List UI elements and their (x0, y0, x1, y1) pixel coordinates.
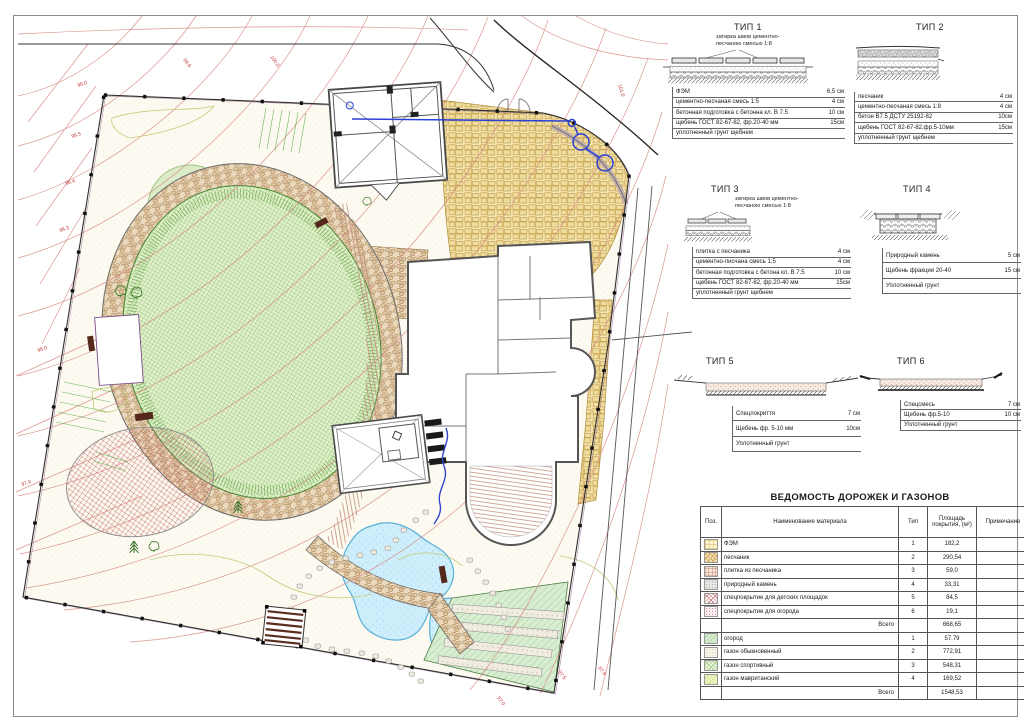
swatch-playground (704, 593, 718, 604)
col-header-name: Наименование материала (722, 507, 899, 538)
total-row: Всего1548,53 (701, 686, 1024, 700)
section-title: ТИП 6 (856, 356, 966, 366)
materials-table-body: ФЭМ1182,2песчаник2290,54плитка из песчан… (701, 538, 1024, 700)
materials-table: Поз. Наименование материала Тип Площадь … (700, 506, 1024, 700)
layer-thickness (1016, 283, 1020, 290)
layer-row: щебень ГОСТ 82-67-82, фр.20-40 мм15см (693, 279, 851, 289)
layer-name: Спецпокриття (736, 411, 775, 418)
layer-thickness (840, 130, 844, 137)
layer-row: бетонная подготовка с бетонна кл. В 7.51… (673, 108, 845, 118)
section-title: ТИП 3 (640, 184, 810, 194)
section-tip3: ТИП 3 затирка швов цементно- песчаною см… (640, 184, 810, 299)
layer-row: Уплотненный грунт (733, 437, 861, 452)
layer-list: Природный камень5 смЩебень фракции 20-40… (882, 248, 1021, 294)
swatch-sandstone (704, 552, 718, 563)
layer-name: песчаник (858, 94, 883, 101)
layer-list: ФЭМ6,5 смцементно-песчаная смесь 1:54 см… (672, 87, 845, 139)
contour-label: 98.0 (37, 345, 48, 354)
section-tip1: ТИП 1 затирка швов цементно- песчаною см… (648, 22, 848, 139)
swatch-tile (704, 566, 718, 577)
joint-callout: затирка швов цементно- песчаною смесью 1… (716, 34, 848, 47)
layer-thickness: 4 см (834, 259, 850, 266)
layer-row: цементно-песчаная смесь 1:54 см (673, 98, 845, 108)
contour-label: 100.0 (268, 55, 280, 69)
swatch-fem (704, 539, 718, 550)
layer-name: уплотненный грунт щебнем (696, 290, 773, 297)
layer-row: Щебень фракции 20-4015 см (883, 263, 1021, 278)
layer-row: щебень ГОСТ 82-67-82, фр.20-40 мм15см (673, 119, 845, 129)
layer-name: Щебень фр. 5-10 мм (736, 426, 793, 433)
col-header-note: Примечание (977, 507, 1024, 538)
layer-thickness: 15см (826, 120, 844, 127)
col-header-type: Тип (899, 507, 928, 538)
layer-row: бетонная подготовка с бетона кл. В 7.510… (693, 268, 851, 278)
layer-name: Природный камень (886, 253, 940, 260)
layer-row: Уплотненный грунт (883, 279, 1021, 294)
layer-thickness: 7 см (1004, 402, 1020, 409)
swatch-ogorod (704, 633, 718, 644)
table-row: природный камень433,31 (701, 578, 1024, 592)
tip5-cross-section (672, 372, 860, 402)
contour-label: 97.5 (596, 666, 607, 678)
tip1-cross-section (658, 49, 818, 85)
layer-name: бетон В7.5 ДСТУ 25192-82 (858, 114, 932, 121)
layer-name: бетонная подготовка с бетонна кл. В 7.5 (676, 110, 788, 117)
layer-name: цементно-песчаная смесь 1:8 (858, 104, 941, 111)
layer-row: цементно-песчаная смесь 1:84 см (855, 102, 1013, 112)
table-title: ВЕДОМОСТЬ ДОРОЖЕК И ГАЗОНОВ (700, 492, 1020, 503)
layer-row: уплотненный грунт щебнем (855, 134, 1013, 144)
layer-list: песчаник4 смцементно-песчаная смесь 1:84… (854, 92, 1013, 144)
layer-row: ФЭМ6,5 см (673, 87, 845, 97)
layer-thickness: 5 см (1004, 253, 1020, 260)
layer-row: щебень ГОСТ 82-67-82,фр.5-10мм15см (855, 123, 1013, 133)
col-header-area: Площадь покрытия, (м²) (928, 507, 977, 538)
total-row: Всего668,65 (701, 619, 1024, 633)
swatch-natstone (704, 579, 718, 590)
layer-row: Щебень фр.5-1010 см (901, 410, 1021, 420)
tip4-cross-section (858, 208, 962, 244)
layer-row: Уплотненный грунт (901, 421, 1021, 431)
layer-list: Спецсмесь7 смЩебень фр.5-1010 смУплотнен… (900, 400, 1021, 431)
layer-name: цементно-писчана смесь 1:5 (696, 259, 776, 266)
table-row: плитка из песчаника359,0 (701, 565, 1024, 579)
table-row: огород157,79 (701, 632, 1024, 646)
layer-thickness (856, 441, 860, 448)
section-title: ТИП 2 (846, 22, 1014, 32)
swatch-lawnmavr (704, 674, 718, 685)
swatch-gardencover (704, 606, 718, 617)
contour-label: 99.6 (181, 58, 192, 70)
swatch-lawnplain (704, 647, 718, 658)
layer-name: щебень ГОСТ 82-67-82, фр.20-40 мм (676, 120, 779, 127)
section-tip4: ТИП 4 Природный камень5 смЩебень фракции… (852, 184, 982, 294)
layer-name: плитка с песчаника (696, 249, 750, 256)
section-tip2: ТИП 2 песчаник4 смцементно-песчаная смес… (846, 22, 1014, 144)
layer-thickness: 15см (994, 125, 1012, 132)
layer-thickness: 4 см (828, 99, 844, 106)
contour-label: 98.4 (65, 178, 76, 187)
section-tip6: ТИП 6 Спецсмесь7 смЩебень фр.5-1010 смУп… (856, 356, 966, 431)
contour-label: 97.9 (21, 479, 32, 488)
layer-name: Уплотненный грунт (736, 441, 789, 448)
layer-row: Спецсмесь7 см (901, 400, 1021, 410)
table-row: песчаник2290,54 (701, 551, 1024, 565)
layer-thickness: 10 см (1001, 412, 1020, 419)
contour-label: 101.0 (616, 84, 626, 98)
tip2-cross-section (852, 44, 944, 90)
drawing-sheet: 99.6 100.0 101.0 98.0 98.5 98.4 98.3 98.… (0, 0, 1024, 724)
joint-callout: затирка швов цементно- песчаною смесью 1… (735, 196, 810, 209)
section-title: ТИП 4 (852, 184, 982, 194)
tip3-cross-section (678, 211, 758, 245)
layer-row: уплотненный грунт щебнем (673, 129, 845, 139)
site-plan: 99.6 100.0 101.0 98.0 98.5 98.4 98.3 98.… (0, 0, 692, 724)
layer-thickness: 10см (994, 114, 1012, 121)
layer-row: плитка с песчаника4 см (693, 247, 851, 257)
layer-thickness: 10 см (831, 270, 850, 277)
layer-name: Уплотненный грунт (904, 422, 957, 429)
layer-thickness: 4 см (996, 104, 1012, 111)
layer-thickness (1016, 422, 1020, 429)
layer-row: Щебень фр. 5-10 мм10см (733, 421, 861, 436)
layer-name: ФЭМ (676, 89, 690, 96)
layer-thickness: 4 см (996, 94, 1012, 101)
layer-name: цементно-песчаная смесь 1:5 (676, 99, 759, 106)
wooden-deck (261, 605, 306, 649)
layer-list: плитка с песчаника4 смцементно-писчана с… (692, 247, 851, 299)
contour-label: 98.5 (71, 131, 82, 140)
layer-name: щебень ГОСТ 82-67-82,фр.5-10мм (858, 125, 954, 132)
layer-thickness: 15 см (1001, 268, 1020, 275)
layer-row: бетон В7.5 ДСТУ 25192-8210см (855, 113, 1013, 123)
layer-row: песчаник4 см (855, 92, 1013, 102)
swatch-lawnsport (704, 660, 718, 671)
table-row: газон спортивный3548,31 (701, 659, 1024, 673)
layer-name: щебень ГОСТ 82-67-82, фр.20-40 мм (696, 280, 799, 287)
layer-name: Уплотненный грунт (886, 283, 939, 290)
layer-name: уплотненный грунт щебнем (676, 130, 753, 137)
tip6-cross-section (858, 370, 1004, 398)
contour-label: 97.0 (495, 696, 506, 708)
section-title: ТИП 5 (650, 356, 790, 366)
layer-list: Спецпокриття7 смЩебень фр. 5-10 мм10смУп… (732, 406, 861, 452)
section-title: ТИП 1 (648, 22, 848, 32)
table-row: спецпокрытие для детских площадок584,5 (701, 592, 1024, 606)
layer-name: Щебень фр.5-10 (904, 412, 950, 419)
layer-thickness: 10 см (825, 110, 844, 117)
layer-thickness: 6,5 см (823, 89, 844, 96)
rest-area (95, 315, 144, 386)
table-row: газон мавританский4169,52 (701, 673, 1024, 687)
table-row: спецпокрытие для огорода619,1 (701, 605, 1024, 619)
table-row: газон обыкновенный2772,91 (701, 646, 1024, 660)
layer-thickness (846, 290, 850, 297)
layer-row: цементно-писчана смесь 1:54 см (693, 258, 851, 268)
table-row: ФЭМ1182,2 (701, 538, 1024, 552)
contour-label: 98.3 (59, 225, 70, 234)
table-header-row: Поз. Наименование материала Тип Площадь … (701, 507, 1024, 538)
section-tip5: ТИП 5 Спецпокриття7 смЩебень фр. 5-10 мм… (650, 356, 790, 452)
layer-thickness: 15см (832, 280, 850, 287)
layer-name: Спецсмесь (904, 402, 935, 409)
contour-label: 98.0 (77, 80, 88, 89)
col-header-pos: Поз. (701, 507, 722, 538)
layer-thickness: 4 см (834, 249, 850, 256)
layer-thickness (1008, 135, 1012, 142)
layer-row: Спецпокриття7 см (733, 406, 861, 421)
layer-row: Природный камень5 см (883, 248, 1021, 263)
layer-row: уплотненный грунт щебнем (693, 289, 851, 299)
layer-name: Щебень фракции 20-40 (886, 268, 951, 275)
layer-name: уплотненный грунт щебнем (858, 135, 935, 142)
layer-name: бетонная подготовка с бетона кл. В 7.5 (696, 270, 805, 277)
